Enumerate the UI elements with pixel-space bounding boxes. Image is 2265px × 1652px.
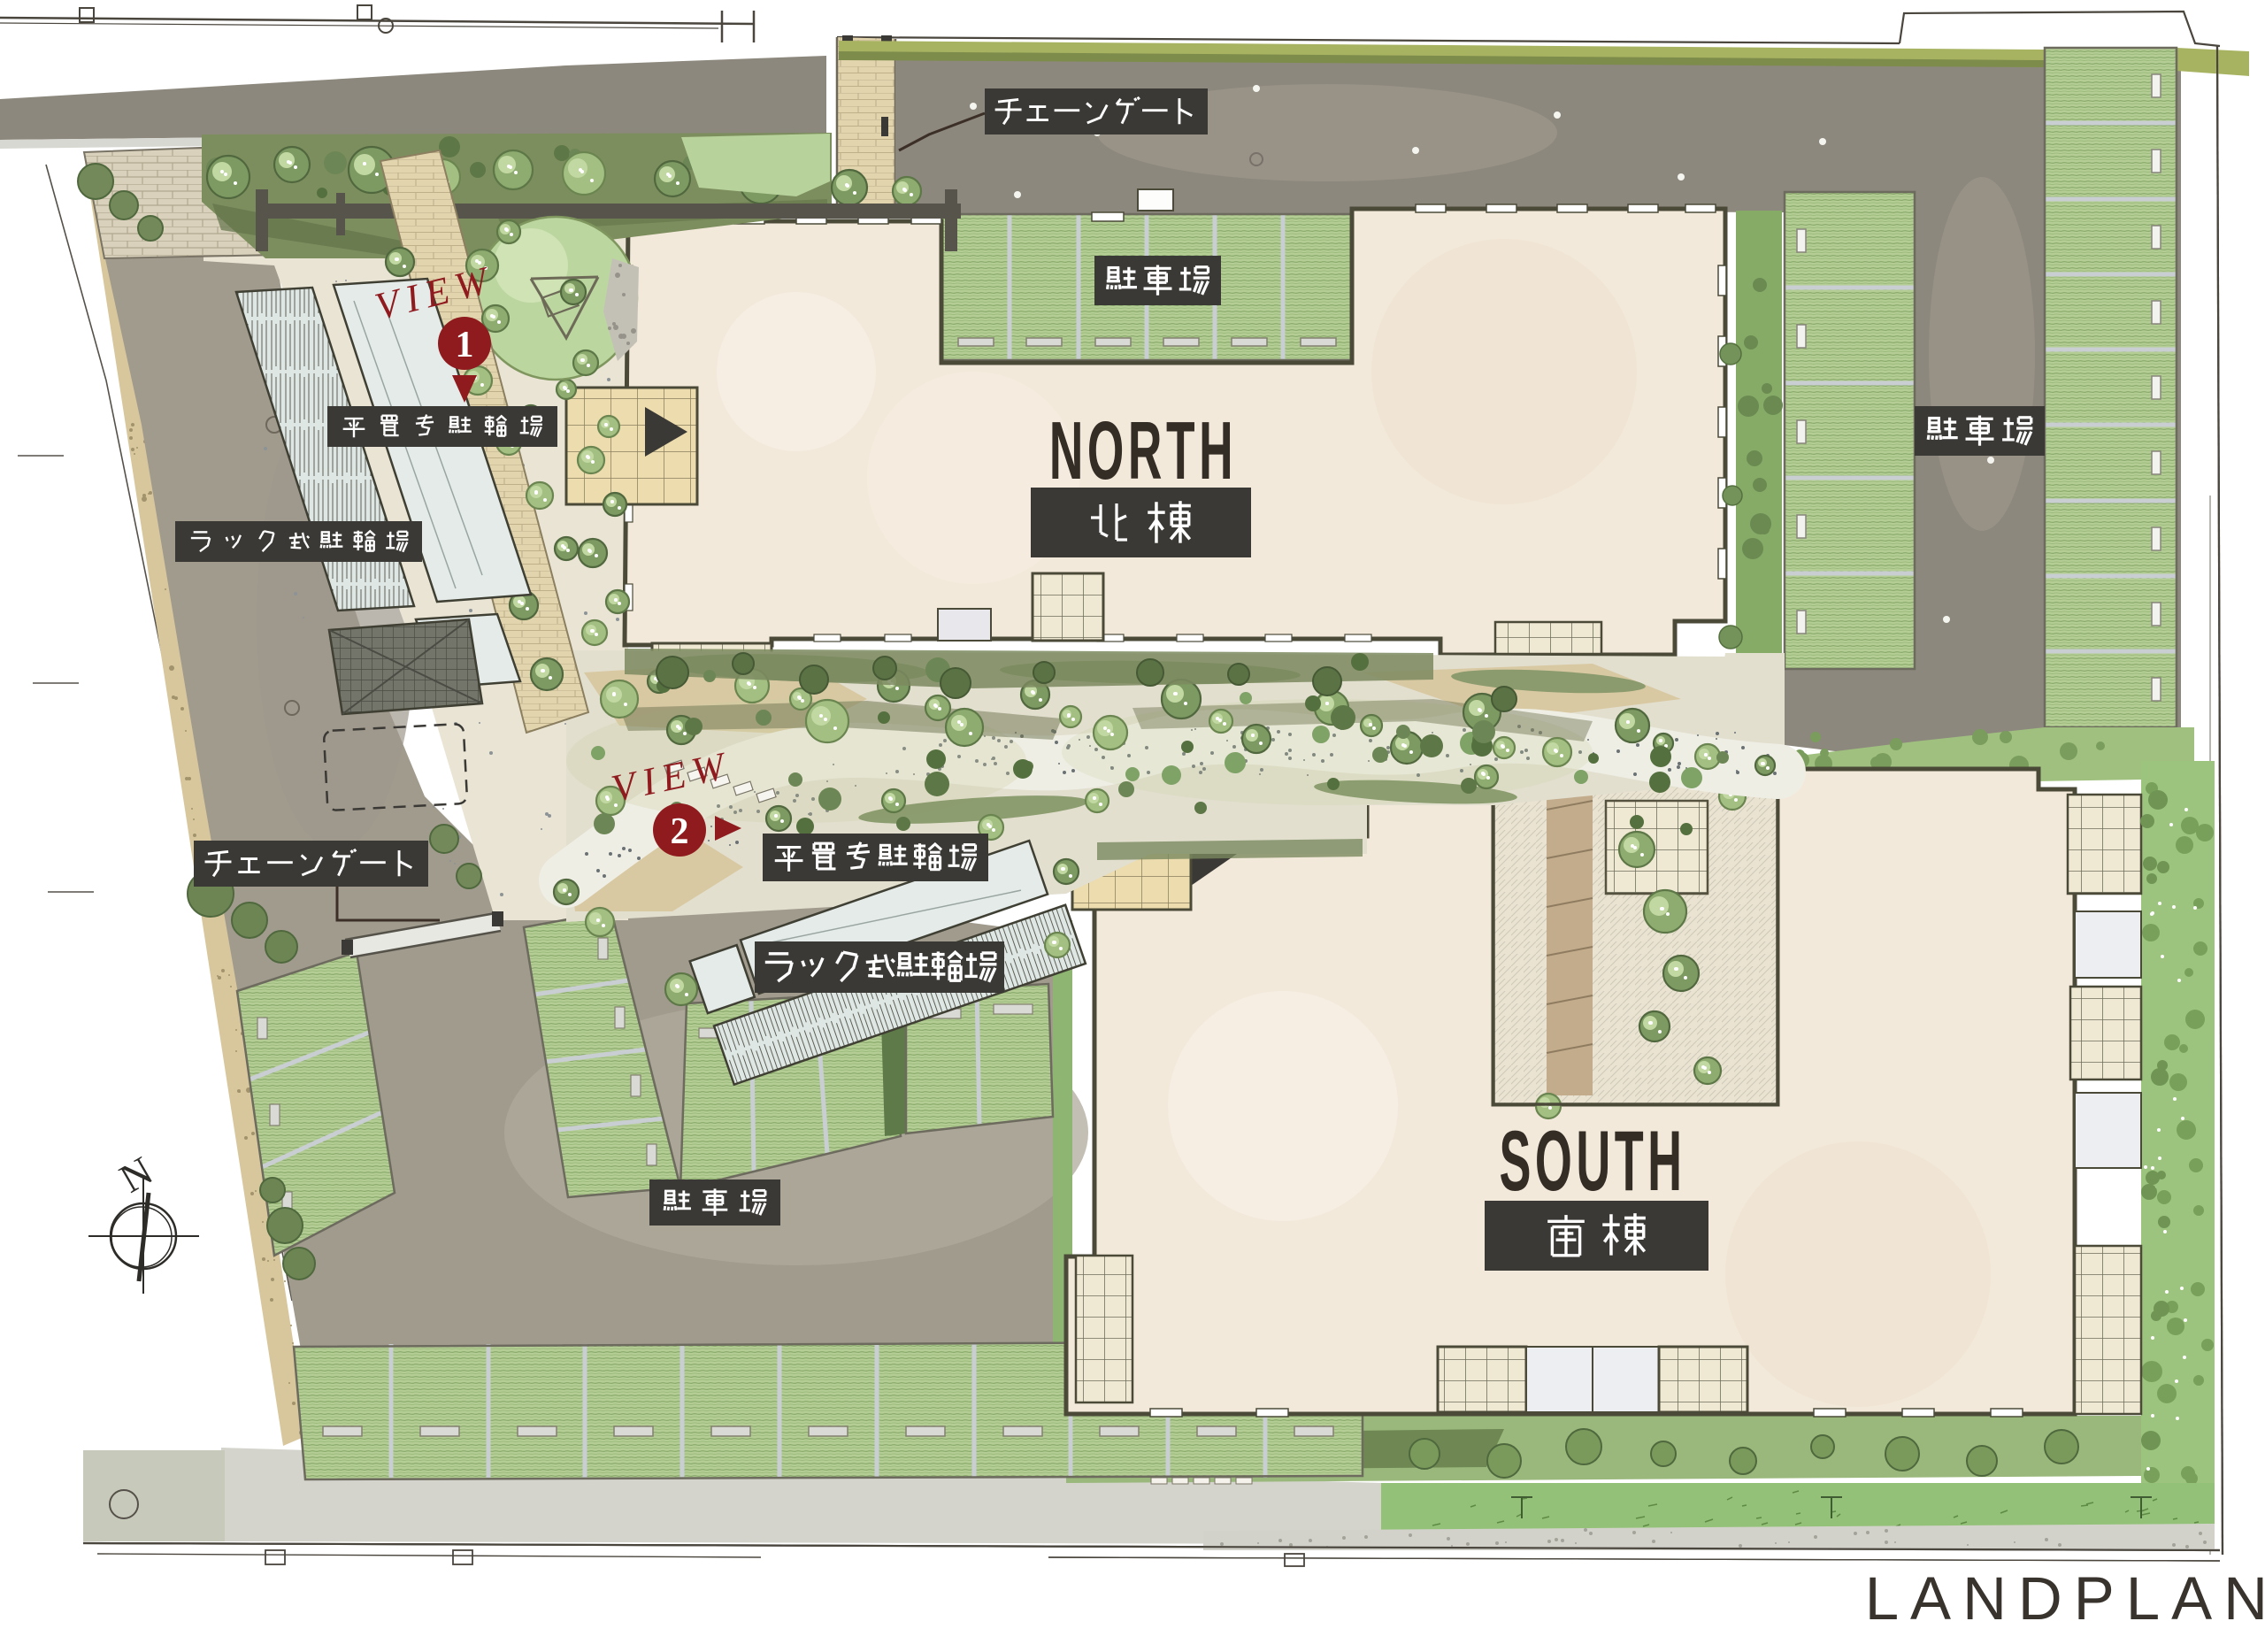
svg-text:NORTH: NORTH: [1049, 405, 1237, 497]
svg-text:SOUTH: SOUTH: [1500, 1112, 1686, 1209]
svg-text:2: 2: [671, 811, 689, 852]
svg-text:1: 1: [456, 325, 474, 365]
svg-text:LANDPLAN: LANDPLAN: [1865, 1564, 2265, 1633]
